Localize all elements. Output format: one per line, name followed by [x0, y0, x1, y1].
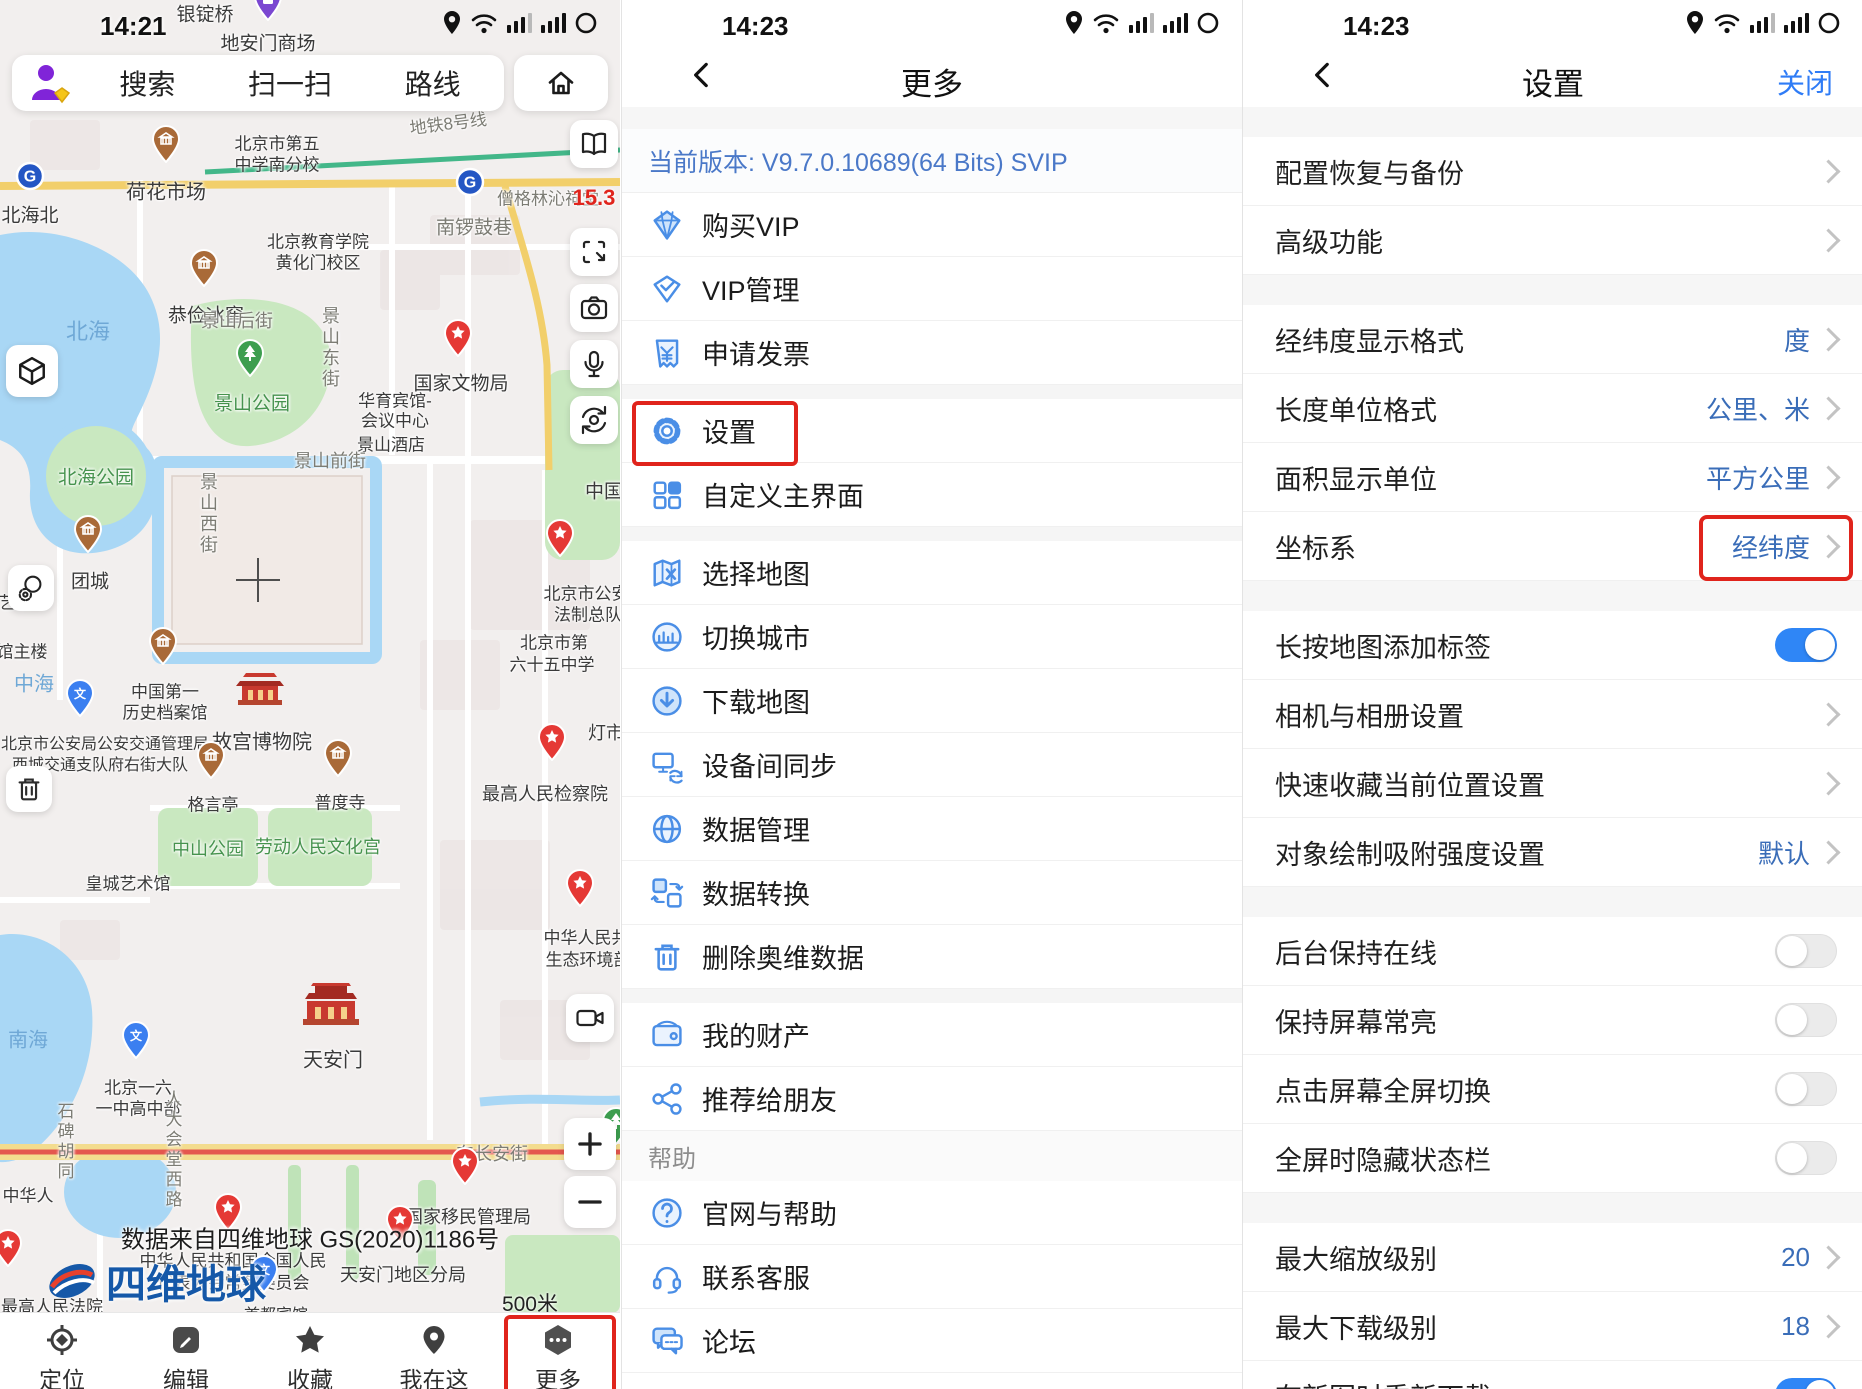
menu-item-切换城市[interactable]: 切换城市 [622, 605, 1242, 669]
setting-label: 后台保持在线 [1275, 932, 1775, 971]
chevron-right-icon [1816, 327, 1840, 351]
search-bar[interactable]: 搜索扫一扫路线 [12, 55, 504, 111]
map-label: 灯市 [588, 719, 620, 745]
map-poi-brown[interactable] [73, 515, 103, 558]
wallet-icon [648, 1016, 686, 1054]
map-label: 荷花市场 [126, 176, 206, 205]
map-poi-redstar[interactable] [0, 1229, 23, 1272]
setting-row-快速收藏当前位置设置[interactable]: 快速收藏当前位置设置 [1243, 749, 1862, 818]
shield-icon [648, 1386, 686, 1389]
more-icon [541, 1323, 575, 1357]
sync-icon [648, 746, 686, 784]
trash-icon [648, 938, 686, 976]
map-logo-text: 四维地球 [106, 1252, 266, 1310]
section-header-help: 帮助 [622, 1131, 1242, 1181]
menu-label: 推荐给朋友 [702, 1079, 837, 1118]
setting-label: 长按地图添加标签 [1275, 626, 1775, 665]
map-poi-redstar[interactable] [545, 519, 575, 562]
setting-value: 默认 [1758, 834, 1810, 871]
screenshot-button[interactable] [570, 228, 618, 276]
map-poi-green[interactable] [235, 339, 265, 382]
nav-label: 定位 [39, 1361, 85, 1389]
chevron-right-icon [1816, 840, 1840, 864]
map-logo: 四维地球 [46, 1252, 266, 1310]
setting-label: 最大缩放级别 [1275, 1238, 1781, 1277]
toggle-on[interactable] [1775, 628, 1837, 662]
setting-value: 18 [1781, 1311, 1810, 1342]
account-avatar[interactable] [24, 60, 76, 106]
setting-label: 快速收藏当前位置设置 [1275, 764, 1820, 803]
search-item-0[interactable]: 搜索 [76, 63, 219, 103]
panel-more: 14:23 更多 当前版本: V9.7.0.10689(64 Bits) SVI… [621, 0, 1242, 1389]
cube-button[interactable] [6, 345, 58, 397]
map-poi-brown[interactable] [196, 741, 226, 784]
video-button[interactable] [566, 994, 614, 1042]
chevron-right-icon [1816, 534, 1840, 558]
panel-map: 银锭桥地安门商场荷花市场北海北地铁8号线南锣鼓巷僧格林沁祠堂北京市第五中学南分校… [0, 0, 620, 1389]
setting-row-高级功能[interactable]: 高级功能 [1243, 206, 1862, 275]
wifi-icon [1092, 11, 1120, 35]
chevron-right-icon [1816, 771, 1840, 795]
setting-label: 配置恢复与备份 [1275, 152, 1820, 191]
map-poi-brown[interactable] [151, 125, 181, 168]
map-label: 黄化门校区 [276, 249, 361, 274]
menu-item-设备间同步[interactable]: 设备间同步 [622, 733, 1242, 797]
map-label: 皇城艺术馆 [86, 870, 171, 895]
toggle-off[interactable] [1775, 1141, 1837, 1175]
setting-row-保持屏幕常亮[interactable]: 保持屏幕常亮 [1243, 986, 1862, 1055]
signal-icon [1128, 11, 1154, 35]
setting-row-点击屏幕全屏切换[interactable]: 点击屏幕全屏切换 [1243, 1055, 1862, 1124]
setting-row-最大缩放级别[interactable]: 最大缩放级别20 [1243, 1223, 1862, 1292]
map-label: 历史档案馆 [123, 699, 208, 724]
setting-row-对象绘制吸附强度设置[interactable]: 对象绘制吸附强度设置默认 [1243, 818, 1862, 887]
mic-button[interactable] [570, 340, 618, 388]
modes-button[interactable] [8, 565, 54, 611]
map-label: 景山公园 [214, 389, 290, 416]
clock: 14:23 [722, 11, 789, 42]
menu-item-设置[interactable]: 设置 [622, 399, 1242, 463]
setting-row-坐标系[interactable]: 坐标系经纬度 [1243, 512, 1862, 581]
menu-item-选择地图[interactable]: 选择地图 [622, 541, 1242, 605]
setting-label: 对象绘制吸附强度设置 [1275, 833, 1758, 872]
svg-text:文: 文 [130, 1028, 143, 1043]
map-label: 最高人民检察院 [482, 780, 608, 806]
signal2-icon [1783, 11, 1809, 35]
map-label: 天安门地区分局 [340, 1261, 466, 1287]
signal-icon [1749, 11, 1775, 35]
map-poi-brown[interactable] [148, 627, 178, 670]
nav-label: 收藏 [287, 1361, 333, 1389]
map-label: 北海 [66, 314, 110, 346]
setting-label: 长度单位格式 [1275, 389, 1706, 428]
chevron-right-icon [1816, 1314, 1840, 1338]
map-poi-bluepin[interactable]: 文 [65, 679, 95, 722]
map-label: 石碑胡同 [52, 1102, 77, 1182]
setting-label: 保持屏幕常亮 [1275, 1001, 1775, 1040]
panel-settings: 14:23 设置 关闭 配置恢复与备份高级功能经纬度显示格式度长度单位格式公里、… [1242, 0, 1862, 1389]
chevron-right-icon [1816, 702, 1840, 726]
menu-item-数据转换[interactable]: 数据转换 [622, 861, 1242, 925]
edit-icon [169, 1323, 203, 1357]
statusbar-right: 14:23 [1243, 0, 1862, 45]
chevron-right-icon [1816, 396, 1840, 420]
setting-row-经纬度显示格式[interactable]: 经纬度显示格式度 [1243, 305, 1862, 374]
setting-value: 20 [1781, 1242, 1810, 1273]
page-title: 设置 [1243, 59, 1862, 104]
svg-text:G: G [464, 175, 476, 192]
map-label: 景山西街 [195, 472, 221, 556]
book-button[interactable] [570, 120, 618, 168]
plus-button[interactable] [564, 1118, 616, 1170]
menu-item-购买VIP[interactable]: 购买VIP [622, 193, 1242, 257]
map-label: 国家文物局 [413, 369, 508, 396]
map-poi-palace[interactable] [232, 667, 288, 712]
setting-value: 平方公里 [1706, 459, 1810, 496]
map-poi-redstar[interactable] [443, 319, 473, 362]
map-label: 天安门 [303, 1044, 363, 1073]
svg-text:文: 文 [74, 686, 87, 701]
header-more: 更多 [622, 45, 1242, 107]
location-icon [442, 10, 462, 36]
map-poi-brown[interactable] [189, 249, 219, 292]
toggle-off[interactable] [1775, 1003, 1837, 1037]
nav-item-更多[interactable]: 更多 [496, 1313, 620, 1389]
city-icon [648, 618, 686, 656]
map-poi-metro[interactable]: G [15, 161, 45, 196]
map-label: 生态环境部 [546, 946, 621, 971]
map-label: 北海北 [1, 201, 58, 228]
menu-label: 删除奥维数据 [702, 937, 864, 976]
nav-item-定位[interactable]: 定位 [0, 1313, 124, 1389]
map-label: 景山后街 [201, 307, 273, 333]
setting-value: 公里、米 [1706, 390, 1810, 427]
setting-row-配置恢复与备份[interactable]: 配置恢复与备份 [1243, 137, 1862, 206]
map-poi-bluepin[interactable]: 文 [121, 1021, 151, 1064]
setting-label: 经纬度显示格式 [1275, 320, 1784, 359]
map-label: 南海 [8, 1024, 48, 1053]
setting-value: 度 [1784, 321, 1810, 358]
setting-row-最大下载级别[interactable]: 最大下载级别18 [1243, 1292, 1862, 1361]
setting-label: 相机与相册设置 [1275, 695, 1820, 734]
map-poi-redstar[interactable] [565, 869, 595, 912]
map-label: 故宫博物院 [212, 726, 312, 755]
nav-label: 更多 [535, 1361, 581, 1389]
map-label: 南锣鼓巷 [436, 213, 512, 240]
location-icon [1685, 10, 1705, 36]
menu-label: 我的财产 [702, 1015, 810, 1054]
signal2-icon [1162, 11, 1188, 35]
map-label: 馆主楼 [0, 638, 48, 663]
setting-label: 有新图时重新下载 [1275, 1376, 1775, 1389]
setting-label: 最大下载级别 [1275, 1307, 1781, 1346]
map-label: 中国 [585, 477, 620, 504]
menu-item-VIP管理[interactable]: VIP管理 [622, 257, 1242, 321]
headset-icon [648, 1258, 686, 1296]
search-item-1[interactable]: 扫一扫 [219, 63, 362, 103]
menu-item-我的财产[interactable]: 我的财产 [622, 1003, 1242, 1067]
status-icons [1685, 10, 1841, 36]
version-row: 当前版本: V9.7.0.10689(64 Bits) SVIP [622, 129, 1242, 193]
app-screenshot: 银锭桥地安门商场荷花市场北海北地铁8号线南锣鼓巷僧格林沁祠堂北京市第五中学南分校… [0, 0, 1862, 1389]
menu-item-官网与帮助[interactable]: 官网与帮助 [622, 1181, 1242, 1245]
menu-item-联系客服[interactable]: 联系客服 [622, 1245, 1242, 1309]
map-crosshair-icon [236, 558, 280, 602]
more-menu-scroll[interactable]: 当前版本: V9.7.0.10689(64 Bits) SVIP 购买VIP V… [622, 107, 1242, 1389]
menu-item-申请发票[interactable]: 申请发票 [622, 321, 1242, 385]
toggle-on[interactable] [1775, 1378, 1837, 1389]
menu-label: 设备间同步 [702, 745, 837, 784]
status-icons [1064, 10, 1220, 36]
share-icon [648, 1080, 686, 1118]
statusbar-middle: 14:23 [622, 0, 1242, 45]
map-label: 人大会堂西路 [160, 1090, 185, 1210]
setting-row-相机与相册设置[interactable]: 相机与相册设置 [1243, 680, 1862, 749]
trash2-button[interactable] [6, 766, 52, 812]
diamond2-icon [648, 270, 686, 308]
nav-item-编辑[interactable]: 编辑 [124, 1313, 248, 1389]
map-label: 景山东街 [317, 306, 343, 390]
map-label: 中山公园 [172, 835, 244, 861]
setting-row-后台保持在线[interactable]: 后台保持在线 [1243, 917, 1862, 986]
setting-label: 全屏时隐藏状态栏 [1275, 1139, 1775, 1178]
map-label: 景山酒店 [357, 431, 425, 456]
chevron-right-icon [1816, 465, 1840, 489]
map-badge: 15.3 [573, 185, 616, 211]
page-title: 更多 [622, 59, 1242, 104]
map-poi-redstar[interactable] [450, 1147, 480, 1190]
nav-label: 编辑 [163, 1361, 209, 1389]
forum-icon [648, 1322, 686, 1360]
map-poi-metro[interactable]: G [455, 167, 485, 202]
clock: 14:21 [100, 11, 167, 42]
map-label: 劳动人民文化宫 [255, 833, 381, 859]
statusbar-left: 14:21 [0, 0, 620, 45]
setting-label: 高级功能 [1275, 221, 1820, 260]
menu-label: VIP管理 [702, 269, 800, 308]
menu-label: 数据转换 [702, 873, 810, 912]
locate-icon [45, 1323, 79, 1357]
map-label: 格言亭 [188, 791, 239, 816]
bottom-nav: 定位 编辑 收藏 我在这 更多 [0, 1313, 620, 1389]
menu-label: 论坛 [702, 1321, 756, 1360]
menu-item-推荐给朋友[interactable]: 推荐给朋友 [622, 1067, 1242, 1131]
setting-row-有新图时重新下载[interactable]: 有新图时重新下载 [1243, 1361, 1862, 1389]
diamond-icon [648, 206, 686, 244]
battery-icon [574, 11, 598, 35]
setting-label: 坐标系 [1275, 527, 1732, 566]
menu-item-下载地图[interactable]: 下载地图 [622, 669, 1242, 733]
map-poi-redstar[interactable] [537, 723, 567, 766]
setting-label: 面积显示单位 [1275, 458, 1706, 497]
menu-label: 设置 [702, 411, 756, 450]
map-attribution: 数据来自四维地球 GS(2020)1186号 [121, 1220, 499, 1255]
menu-label: 隐私与服务协议 [702, 1385, 891, 1389]
signal2-icon [540, 11, 566, 35]
map-poi-brown[interactable] [323, 739, 353, 782]
map-label: 中学南分校 [235, 151, 320, 176]
siwei-logo-icon [46, 1255, 98, 1307]
chevron-right-icon [1816, 1245, 1840, 1269]
menu-label: 官网与帮助 [702, 1193, 837, 1232]
setting-row-全屏时隐藏状态栏[interactable]: 全屏时隐藏状态栏 [1243, 1124, 1862, 1193]
globe-icon [648, 810, 686, 848]
location-icon [1064, 10, 1084, 36]
map-label: 普度寺 [315, 789, 366, 814]
menu-label: 自定义主界面 [702, 475, 864, 514]
wifi-icon [470, 11, 498, 35]
chevron-right-icon [1816, 228, 1840, 252]
rotatecam-button[interactable] [570, 396, 618, 444]
map-label: 六十五中学 [510, 651, 595, 676]
grid-icon [648, 476, 686, 514]
nav-item-我在这[interactable]: 我在这 [372, 1313, 496, 1389]
battery-icon [1817, 11, 1841, 35]
map-label: 中海 [14, 668, 54, 697]
setting-row-长按地图添加标签[interactable]: 长按地图添加标签 [1243, 611, 1862, 680]
nav-label: 我在这 [400, 1361, 469, 1389]
menu-label: 下载地图 [702, 681, 810, 720]
menu-item-论坛[interactable]: 论坛 [622, 1309, 1242, 1373]
setting-row-面积显示单位[interactable]: 面积显示单位平方公里 [1243, 443, 1862, 512]
map-poi-gate[interactable] [295, 977, 367, 1032]
menu-label: 数据管理 [702, 809, 810, 848]
status-icons [442, 10, 598, 36]
home-button[interactable] [514, 55, 608, 111]
wifi-icon [1713, 11, 1741, 35]
download-icon [648, 682, 686, 720]
star-icon [293, 1323, 327, 1357]
setting-row-长度单位格式[interactable]: 长度单位格式公里、米 [1243, 374, 1862, 443]
minus-button[interactable] [564, 1176, 616, 1228]
mappick-icon [648, 554, 686, 592]
pin-icon [417, 1323, 451, 1357]
signal-icon [506, 11, 532, 35]
map-label: 中华人 [3, 1182, 54, 1207]
menu-label: 选择地图 [702, 553, 810, 592]
close-button[interactable]: 关闭 [1777, 62, 1833, 102]
battery-icon [1196, 11, 1220, 35]
menu-item-删除奥维数据[interactable]: 删除奥维数据 [622, 925, 1242, 989]
camera-button[interactable] [570, 284, 618, 332]
map-label: 北海公园 [58, 463, 134, 490]
convert-icon [648, 874, 686, 912]
settings-scroll[interactable]: 配置恢复与备份高级功能经纬度显示格式度长度单位格式公里、米面积显示单位平方公里坐… [1243, 107, 1862, 1389]
map-label: 法制总队 [554, 601, 620, 626]
toggle-off[interactable] [1775, 934, 1837, 968]
menu-item-数据管理[interactable]: 数据管理 [622, 797, 1242, 861]
menu-label: 联系客服 [702, 1257, 810, 1296]
gear-icon [648, 412, 686, 450]
menu-item-自定义主界面[interactable]: 自定义主界面 [622, 463, 1242, 527]
menu-label: 切换城市 [702, 617, 810, 656]
invoice-icon [648, 334, 686, 372]
toggle-off[interactable] [1775, 1072, 1837, 1106]
header-settings: 设置 关闭 [1243, 45, 1862, 107]
setting-value: 经纬度 [1732, 528, 1810, 565]
map-label: 会议中心 [361, 407, 429, 432]
menu-label: 购买VIP [702, 205, 800, 244]
map-label: 团城 [71, 567, 109, 594]
chevron-right-icon [1816, 159, 1840, 183]
nav-item-收藏[interactable]: 收藏 [248, 1313, 372, 1389]
clock: 14:23 [1343, 11, 1410, 42]
setting-label: 点击屏幕全屏切换 [1275, 1070, 1775, 1109]
map-label: 景山前街 [294, 447, 366, 473]
svg-text:G: G [24, 169, 36, 186]
question-icon [648, 1194, 686, 1232]
menu-item-隐私与服务协议[interactable]: 隐私与服务协议 [622, 1373, 1242, 1389]
menu-label: 申请发票 [702, 333, 810, 372]
search-item-2[interactable]: 路线 [361, 63, 504, 103]
